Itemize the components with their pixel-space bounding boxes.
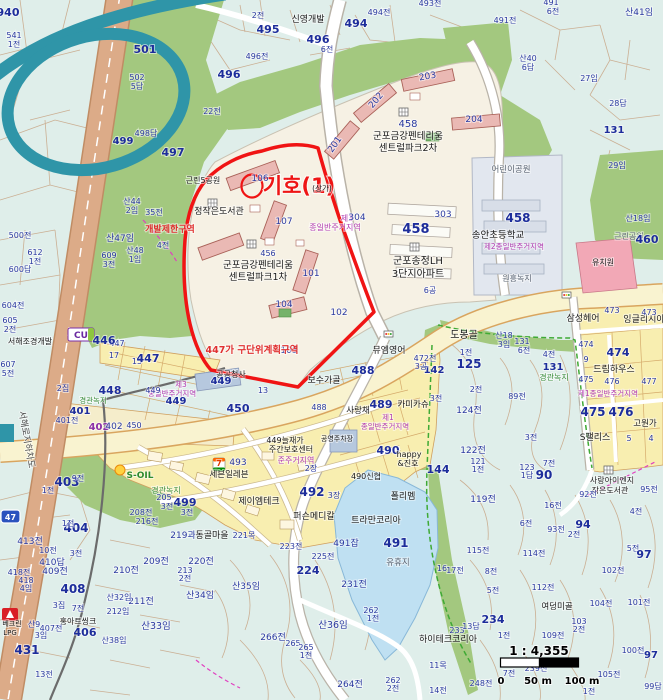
map-label: 산34임	[186, 589, 214, 601]
map-label: 491잡	[333, 537, 358, 549]
map-label: 101전	[628, 597, 651, 607]
map-label: 475	[578, 375, 593, 384]
map-label: 군포송정LH	[393, 255, 443, 267]
scale-bar-white-segment	[501, 658, 540, 667]
map-label: 102	[330, 308, 347, 318]
map-label: 494	[345, 17, 368, 30]
map-label: 송안초등학교	[472, 230, 525, 241]
map-label: 1전	[42, 485, 54, 495]
map-label: 499	[113, 136, 134, 147]
map-label: (상가)	[312, 183, 332, 193]
map-label: 경관녹지	[79, 395, 107, 405]
map-label: 5전	[487, 585, 499, 595]
map-label: 476	[604, 377, 619, 386]
map-label: 474	[607, 346, 630, 359]
map-label: 4전	[543, 349, 555, 359]
map-label: 131	[604, 125, 625, 136]
map-label: 22전	[203, 106, 221, 116]
map-label: 드림하우스	[593, 363, 634, 375]
map-label: 476	[608, 405, 633, 419]
map-label: 210전	[113, 565, 138, 576]
map-label: 산9	[28, 619, 40, 629]
map-label: 도봉골	[450, 329, 478, 341]
map-label: 1전	[472, 464, 484, 474]
map-label: 491	[543, 0, 558, 7]
map-label: 131	[543, 362, 564, 373]
map-label: 223전	[280, 541, 303, 551]
map-label: 제1	[382, 413, 394, 422]
map-label: 1전	[8, 39, 20, 49]
map-label: 473	[604, 306, 619, 315]
map-label: 9	[583, 355, 588, 364]
map-label: 500전	[9, 230, 32, 240]
map-label: 125	[456, 357, 481, 371]
map-label: 제3	[175, 380, 187, 389]
map-label: 1전	[583, 686, 595, 696]
map-label: 센트럴파크1차	[229, 271, 288, 283]
map-label: 458	[402, 222, 429, 237]
map-label: 9전	[72, 473, 84, 483]
map-label: 447	[137, 352, 160, 365]
map-label: 2장	[305, 463, 318, 473]
map-label: 6전	[518, 345, 530, 355]
map-label: 개발제한구역	[145, 223, 195, 235]
map-label: 224	[297, 564, 320, 577]
s-oil-icon	[115, 465, 125, 475]
map-label: 97	[644, 650, 658, 661]
map-label: 502	[129, 73, 144, 82]
map-label: 604전	[2, 300, 25, 310]
map-label: S팰리스	[580, 431, 611, 443]
map-svg[interactable]: 기호(1) 9405411전5015025답22전498답4994972전495…	[0, 0, 663, 700]
map-label: 488	[352, 364, 375, 377]
map-label: 248전	[470, 678, 493, 688]
map-label: 401전	[56, 415, 79, 425]
map-label: 동골마을	[195, 530, 228, 541]
map-label: 501	[134, 43, 157, 56]
map-label: S-OIL	[127, 471, 154, 481]
map-label: 7	[216, 459, 222, 468]
map-label: 408	[60, 582, 85, 596]
map-label: 600답	[9, 264, 32, 274]
map-label: 고원가	[633, 419, 657, 429]
map-label: &진호	[398, 458, 419, 468]
map-label: 2집	[57, 383, 69, 393]
map-label: 498답	[135, 128, 158, 138]
map-label: 304	[348, 213, 365, 223]
map-label: 3집	[53, 600, 65, 610]
map-label: 신영개발	[291, 14, 324, 25]
map-label: 234	[482, 613, 505, 626]
map-label: 군포금강펜테리움	[373, 131, 443, 142]
map-label: 496전	[246, 51, 269, 61]
map-label: 102전	[602, 565, 625, 575]
map-label: 264전	[337, 679, 362, 690]
scale-tick-50: 50 m	[524, 676, 552, 687]
map-label: 17전	[446, 565, 464, 575]
map-label: 13	[258, 386, 268, 395]
route-shield-number: 47	[5, 513, 16, 522]
map-label: 1전	[300, 650, 312, 660]
map-label: 100전	[622, 645, 645, 655]
map-label: 488	[311, 403, 326, 412]
scale-bar-black-segment	[540, 658, 579, 667]
map-label: 폴리멤	[391, 491, 416, 502]
map-canvas[interactable]: 기호(1) 9405411전5015025답22전498답4994972전495…	[0, 0, 663, 700]
map-label: 5답	[131, 81, 144, 91]
map-label: 원흥녹지	[502, 273, 531, 283]
map-label: 여덩미골	[541, 601, 572, 612]
map-label: 3임	[35, 631, 47, 640]
map-label: 산41임	[625, 6, 653, 18]
map-label: 208전	[130, 507, 153, 517]
map-label: 근린5공원	[186, 175, 221, 185]
map-label: 225전	[312, 551, 335, 561]
map-label: 106	[251, 174, 268, 184]
map-label: 2전	[470, 384, 482, 394]
map-label: 3전	[181, 507, 193, 517]
map-label: 609	[101, 251, 116, 260]
map-label: 3전	[161, 501, 173, 511]
map-label: 122전	[460, 445, 485, 456]
map-label: 군포금강펜테리움	[223, 260, 293, 271]
map-label: 495	[257, 23, 280, 36]
map-label: 뮤엠영어	[372, 344, 405, 356]
map-label: 456	[260, 249, 275, 258]
map-label: 6공	[424, 286, 436, 295]
map-label: 3전	[525, 432, 537, 442]
map-label: 35전	[145, 207, 163, 217]
map-label: 11목	[429, 661, 447, 670]
map-label: 세븐일레븐	[209, 470, 248, 480]
scale-tick-0: 0	[498, 676, 505, 687]
map-label: 99답	[644, 681, 662, 691]
map-label: 10전	[39, 545, 57, 555]
map-label: 7전	[503, 668, 515, 678]
map-label: 3임	[498, 340, 510, 349]
map-label: 449	[211, 376, 232, 387]
map-label: LPG	[3, 629, 17, 637]
map-label: 6전	[547, 6, 559, 16]
map-label: 460	[636, 233, 659, 246]
map-label: 446	[93, 334, 116, 347]
map-label: 107	[275, 217, 292, 227]
map-label: 1전	[460, 347, 472, 357]
map-label: 90	[536, 468, 553, 482]
map-label: 산47임	[106, 232, 134, 244]
map-label: 450	[227, 402, 250, 415]
map-label: 센트럴파크2차	[379, 142, 438, 154]
map-label: 어린이공원	[491, 164, 530, 175]
map-label: 612	[27, 248, 42, 257]
map-label: 17	[109, 351, 119, 360]
map-label: 27임	[580, 74, 598, 83]
map-label: 541	[6, 31, 21, 40]
map-label: 1답	[521, 470, 534, 480]
map-label: 104전	[590, 598, 613, 608]
map-label: 3전	[430, 393, 442, 403]
map-label: 2전	[252, 10, 264, 20]
map-label: 사랑채	[346, 405, 369, 416]
map-label: CU	[74, 331, 88, 341]
map-label: 5	[626, 434, 631, 443]
map-label: 449늘재가	[266, 436, 304, 445]
map-label: 산38임	[102, 635, 127, 645]
map-label: 7전	[72, 603, 84, 613]
map-label: 3단지아파트	[392, 268, 444, 280]
map-label: 211전	[128, 596, 153, 607]
map-label: 475	[580, 405, 605, 419]
map-label: 5전	[2, 368, 14, 378]
map-label: 제이엠테크	[238, 495, 279, 507]
map-label: 3전	[103, 259, 115, 269]
map-label: 2전	[568, 529, 580, 539]
map-label: 산36임	[318, 619, 348, 631]
map-label: 베크린	[2, 619, 21, 628]
map-label: 605	[2, 316, 17, 325]
map-label: 보수가골	[307, 375, 340, 386]
map-label: 477	[641, 377, 656, 386]
map-label: 266전	[260, 632, 285, 643]
map-label: 4임	[20, 584, 32, 593]
map-label: 공영주차장	[321, 434, 354, 443]
map-label: 종일반주거지역	[361, 421, 409, 431]
map-label: 제2종일반주거지역	[484, 241, 544, 251]
map-label: 산32임	[107, 592, 132, 602]
map-label: 97	[636, 548, 651, 561]
map-label: 112전	[532, 582, 555, 592]
map-label: 119전	[470, 494, 495, 505]
map-label: 131	[514, 337, 529, 346]
map-label: 산33임	[141, 620, 171, 632]
map-label: 402	[105, 422, 122, 432]
map-label: 홍아트씽크	[60, 616, 97, 626]
map-label: 1전	[367, 613, 379, 623]
map-label: 산35임	[232, 580, 260, 592]
map-label: 219과	[170, 530, 195, 541]
map-label: 산18임	[626, 213, 651, 223]
map-label: 109전	[542, 630, 565, 640]
map-label: 작은도서관	[592, 485, 629, 495]
map-label: 303	[434, 210, 451, 220]
map-label: 1전	[498, 630, 510, 640]
map-label: 종일반주거지역	[309, 222, 361, 232]
map-label: 6답	[522, 62, 535, 72]
map-label: 490신협	[351, 471, 381, 481]
map-label: 하이테크코리아	[419, 634, 478, 645]
map-label: 삼성헤어	[566, 312, 599, 324]
map-label: 449	[166, 396, 187, 407]
map-label: 유휴지	[386, 558, 409, 568]
map-label: 정작은도서관	[194, 206, 244, 217]
map-label: 1전	[62, 518, 74, 528]
map-label: 492	[299, 485, 324, 499]
map-label: 115전	[467, 545, 490, 555]
map-label: 산18	[495, 330, 513, 340]
ramp-fragment	[0, 424, 14, 442]
map-label: 산40	[519, 53, 537, 63]
map-label: 3장	[328, 490, 341, 500]
map-label: 409전	[42, 566, 67, 577]
map-label: 사랑아이엔지	[590, 475, 634, 485]
map-label: 114전	[523, 548, 546, 558]
map-label: 3공	[415, 362, 427, 371]
map-label: 92전	[579, 489, 597, 499]
map-label: 3전	[70, 548, 82, 558]
map-label: 474	[578, 340, 593, 349]
map-label: 89전	[508, 391, 526, 401]
map-label: 경관녹지	[539, 372, 568, 382]
map-label: 14전	[429, 685, 447, 695]
map-label: 431	[14, 643, 39, 657]
map-label: 2전	[4, 324, 16, 334]
map-label: 491	[383, 536, 408, 550]
map-label: 퍼슨메디칼	[293, 511, 334, 522]
map-label: 458	[505, 211, 530, 225]
map-label: 205	[156, 493, 171, 502]
map-label: 28답	[609, 98, 627, 108]
map-label: 101	[302, 269, 319, 279]
route-shield-47: 47	[1, 510, 20, 523]
map-label: 16전	[544, 500, 562, 510]
map-label: 493전	[419, 0, 442, 8]
map-label: 221목	[233, 531, 256, 540]
map-label: 4전	[157, 240, 169, 250]
map-label: 204	[465, 115, 482, 125]
map-label: 13답	[462, 621, 480, 631]
map-label: 4전	[630, 506, 642, 516]
map-label: 산48	[126, 245, 144, 255]
map-label: 13전	[35, 669, 53, 679]
map-label: 406	[74, 626, 97, 639]
map-label: 607	[0, 360, 15, 369]
map-label: 4	[648, 434, 653, 443]
map-label: 카미카슈	[397, 400, 428, 410]
map-label: 6전	[321, 44, 333, 54]
map-label: 940	[0, 6, 20, 19]
map-label: 93전	[547, 524, 565, 534]
map-label: 144	[427, 463, 450, 476]
map-label: 8전	[485, 566, 497, 576]
map-label: 2임	[126, 206, 138, 215]
map-label: 231전	[341, 579, 366, 590]
map-label: 489	[370, 398, 393, 411]
map-label: 496	[218, 68, 241, 81]
map-label: 제1종일반주거지역	[578, 388, 638, 398]
map-label: 493	[229, 458, 246, 468]
map-label: 449	[145, 386, 160, 395]
map-label: 447가 구단위계획구역	[205, 344, 298, 356]
map-label: 212임	[107, 607, 130, 616]
map-label: 95전	[640, 484, 658, 494]
map-label: 2전	[387, 683, 399, 693]
map-label: happy	[397, 450, 422, 459]
map-label: 유치원	[592, 258, 614, 267]
map-label: 1임	[129, 255, 141, 264]
map-label: 29임	[608, 161, 626, 170]
map-label: 6전	[520, 518, 532, 528]
map-label: 216전	[136, 516, 159, 526]
scale-ratio: 1 : 4,355	[509, 644, 568, 658]
map-label: 497	[162, 146, 185, 159]
map-label: 450	[126, 421, 141, 430]
map-label: 124전	[456, 405, 481, 416]
map-label: 473	[641, 308, 656, 317]
map-label: 트라만코리아	[351, 515, 401, 526]
map-label: 491전	[494, 15, 517, 25]
map-label: 458	[398, 119, 417, 130]
scale-tick-100: 100 m	[565, 676, 600, 687]
map-label: 주간보호센터	[269, 444, 313, 454]
map-label: 2전	[573, 624, 585, 634]
map-label: 서해조경개발	[8, 336, 53, 346]
map-label: 494전	[368, 7, 391, 17]
map-label: 7전	[543, 458, 555, 468]
map-label: 209전	[143, 556, 168, 567]
map-label: 105전	[598, 669, 621, 679]
map-label: 산44	[123, 196, 141, 206]
map-label: 2전	[179, 573, 191, 583]
map-label: 104	[275, 300, 292, 310]
